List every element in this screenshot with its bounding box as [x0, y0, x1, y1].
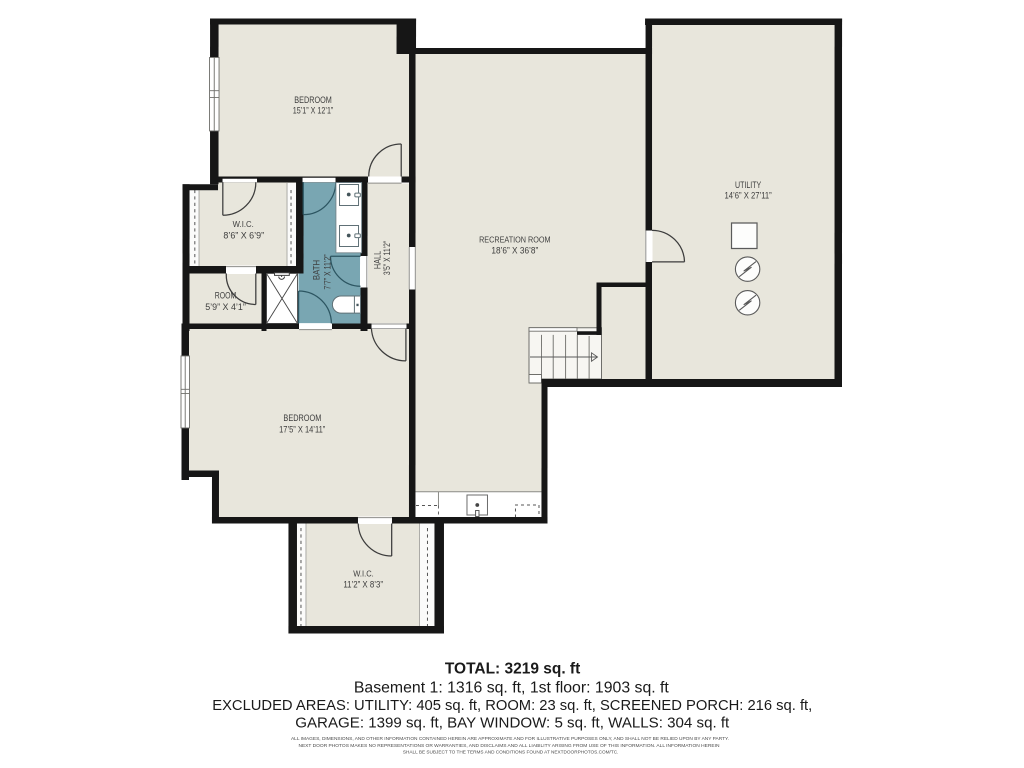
svg-text:15’1” X 12’1”: 15’1” X 12’1” [293, 105, 334, 115]
svg-text:ALL IMAGES, DIMENSIONS, AND OT: ALL IMAGES, DIMENSIONS, AND OTHER INFORM… [291, 736, 729, 742]
svg-text:BEDROOM: BEDROOM [283, 413, 321, 423]
svg-text:EXCLUDED AREAS: UTILITY: 405 s: EXCLUDED AREAS: UTILITY: 405 sq. ft, ROO… [212, 697, 812, 714]
svg-text:GARAGE: 1399 sq. ft, BAY WINDO: GARAGE: 1399 sq. ft, BAY WINDOW: 5 sq. f… [295, 714, 730, 731]
svg-text:11’2” X 8’3”: 11’2” X 8’3” [343, 580, 383, 590]
svg-text:Basement 1: 1316 sq. ft, 1st f: Basement 1: 1316 sq. ft, 1st floor: 1903… [354, 679, 670, 696]
svg-text:18’6” X 36’8”: 18’6” X 36’8” [491, 245, 538, 255]
svg-text:W.I.C.: W.I.C. [233, 219, 254, 229]
svg-text:8’6” X 6’9”: 8’6” X 6’9” [223, 231, 264, 241]
svg-text:RECREATION ROOM: RECREATION ROOM [479, 234, 551, 244]
svg-text:17’5” X 14’11”: 17’5” X 14’11” [279, 424, 325, 434]
svg-text:TOTAL: 3219 sq. ft: TOTAL: 3219 sq. ft [445, 660, 580, 677]
svg-text:BATH: BATH [312, 260, 322, 280]
svg-text:BEDROOM: BEDROOM [294, 95, 332, 105]
svg-text:UTILITY: UTILITY [735, 180, 761, 190]
svg-text:7’7” X 11’2”: 7’7” X 11’2” [323, 254, 333, 289]
svg-text:NEXT DOOR PHOTOS MAKES NO REPR: NEXT DOOR PHOTOS MAKES NO REPRESENTATION… [298, 743, 719, 749]
svg-text:14’6” X 27’11”: 14’6” X 27’11” [725, 190, 772, 200]
svg-text:SHALL BE SUBJECT TO THE TERMS: SHALL BE SUBJECT TO THE TERMS AND CONDIT… [403, 749, 619, 755]
svg-text:3’5” X 11’2”: 3’5” X 11’2” [382, 241, 392, 275]
svg-text:5’9” X 4’1”: 5’9” X 4’1” [205, 302, 246, 312]
svg-text:W.I.C.: W.I.C. [353, 568, 374, 578]
svg-text:ROOM: ROOM [215, 291, 237, 301]
